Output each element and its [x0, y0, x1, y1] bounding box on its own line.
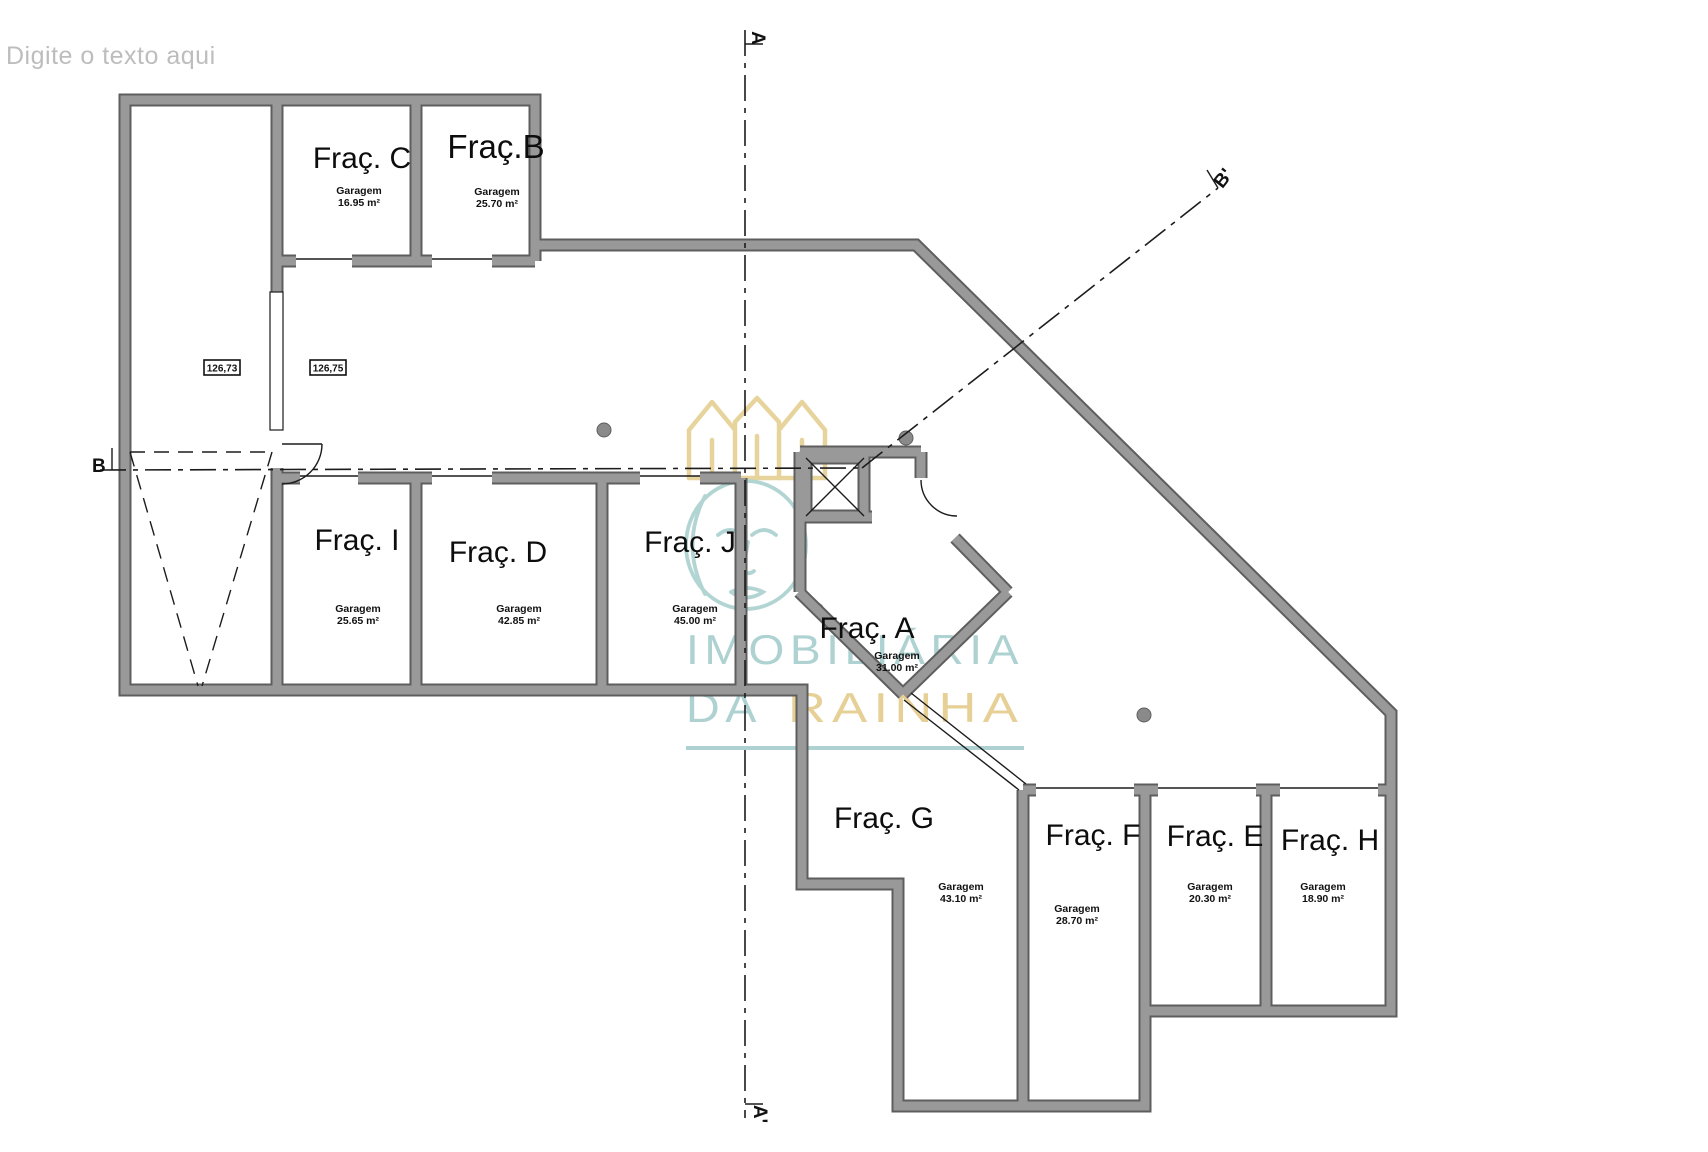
- section-lines: A A' B B': [92, 30, 1238, 1123]
- room-label-i: Fraç. I: [314, 524, 399, 557]
- room-type-f: Garagem: [1054, 903, 1100, 915]
- wall-opening: [270, 292, 283, 430]
- room-area-j: 45.00 m²: [674, 615, 717, 627]
- section-line-b-diagonal: [862, 188, 1218, 468]
- room-type-c: Garagem: [336, 185, 382, 197]
- room-type-i: Garagem: [335, 603, 381, 615]
- room-area-i: 25.65 m²: [337, 615, 380, 627]
- watermark-underline: [686, 746, 1024, 750]
- room-type-h: Garagem: [1300, 881, 1346, 893]
- room-label-h: Fraç. H: [1281, 824, 1379, 857]
- stair-door-arc: [921, 480, 957, 516]
- room-area-b: 25.70 m²: [476, 198, 519, 210]
- room-type-g: Garagem: [938, 881, 984, 893]
- column-dot: [1137, 708, 1151, 722]
- room-area-e: 20.30 m²: [1189, 893, 1232, 905]
- room-area-c: 16.95 m²: [338, 197, 381, 209]
- section-label-a-bottom: A': [749, 1105, 770, 1123]
- floor-plan-page: Digite o texto aqui ® IMOBILIÁRIA D: [0, 0, 1708, 1152]
- room-label-a: Fraç. A: [819, 612, 914, 645]
- section-line-b: [100, 468, 862, 470]
- ramp-dashes: [130, 452, 272, 686]
- room-area-f: 28.70 m²: [1056, 915, 1099, 927]
- section-label-a-top: A: [747, 31, 768, 45]
- section-label-b-left: B: [92, 456, 106, 477]
- room-label-e: Fraç. E: [1167, 820, 1264, 853]
- elevation-label: 126,73: [207, 364, 238, 375]
- room-label-c: Fraç. C: [313, 142, 411, 175]
- floor-plan-svg: ® IMOBILIÁRIA DA RAINHA: [0, 0, 1708, 1152]
- room-type-b: Garagem: [474, 186, 520, 198]
- room-label-b: Fraç.B: [447, 128, 544, 165]
- room-area-g: 43.10 m²: [940, 893, 983, 905]
- room-label-f: Fraç. F: [1046, 819, 1141, 852]
- room-type-e: Garagem: [1187, 881, 1233, 893]
- elevator-x-icon: [806, 458, 864, 516]
- room-label-j: Fraç. J: [644, 526, 736, 559]
- room-type-d: Garagem: [496, 603, 542, 615]
- room-area-h: 18.90 m²: [1302, 893, 1345, 905]
- room-label-g: Fraç. G: [834, 802, 934, 835]
- room-type-a: Garagem: [874, 650, 920, 662]
- walls: [125, 100, 1391, 1106]
- room-area-d: 42.85 m²: [498, 615, 541, 627]
- room-type-j: Garagem: [672, 603, 718, 615]
- elevation-label: 126,75: [313, 364, 344, 375]
- room-area-a: 31.00 m²: [876, 662, 919, 674]
- column-dot: [597, 423, 611, 437]
- section-label-b-end: B': [1210, 165, 1238, 192]
- room-label-d: Fraç. D: [449, 536, 547, 569]
